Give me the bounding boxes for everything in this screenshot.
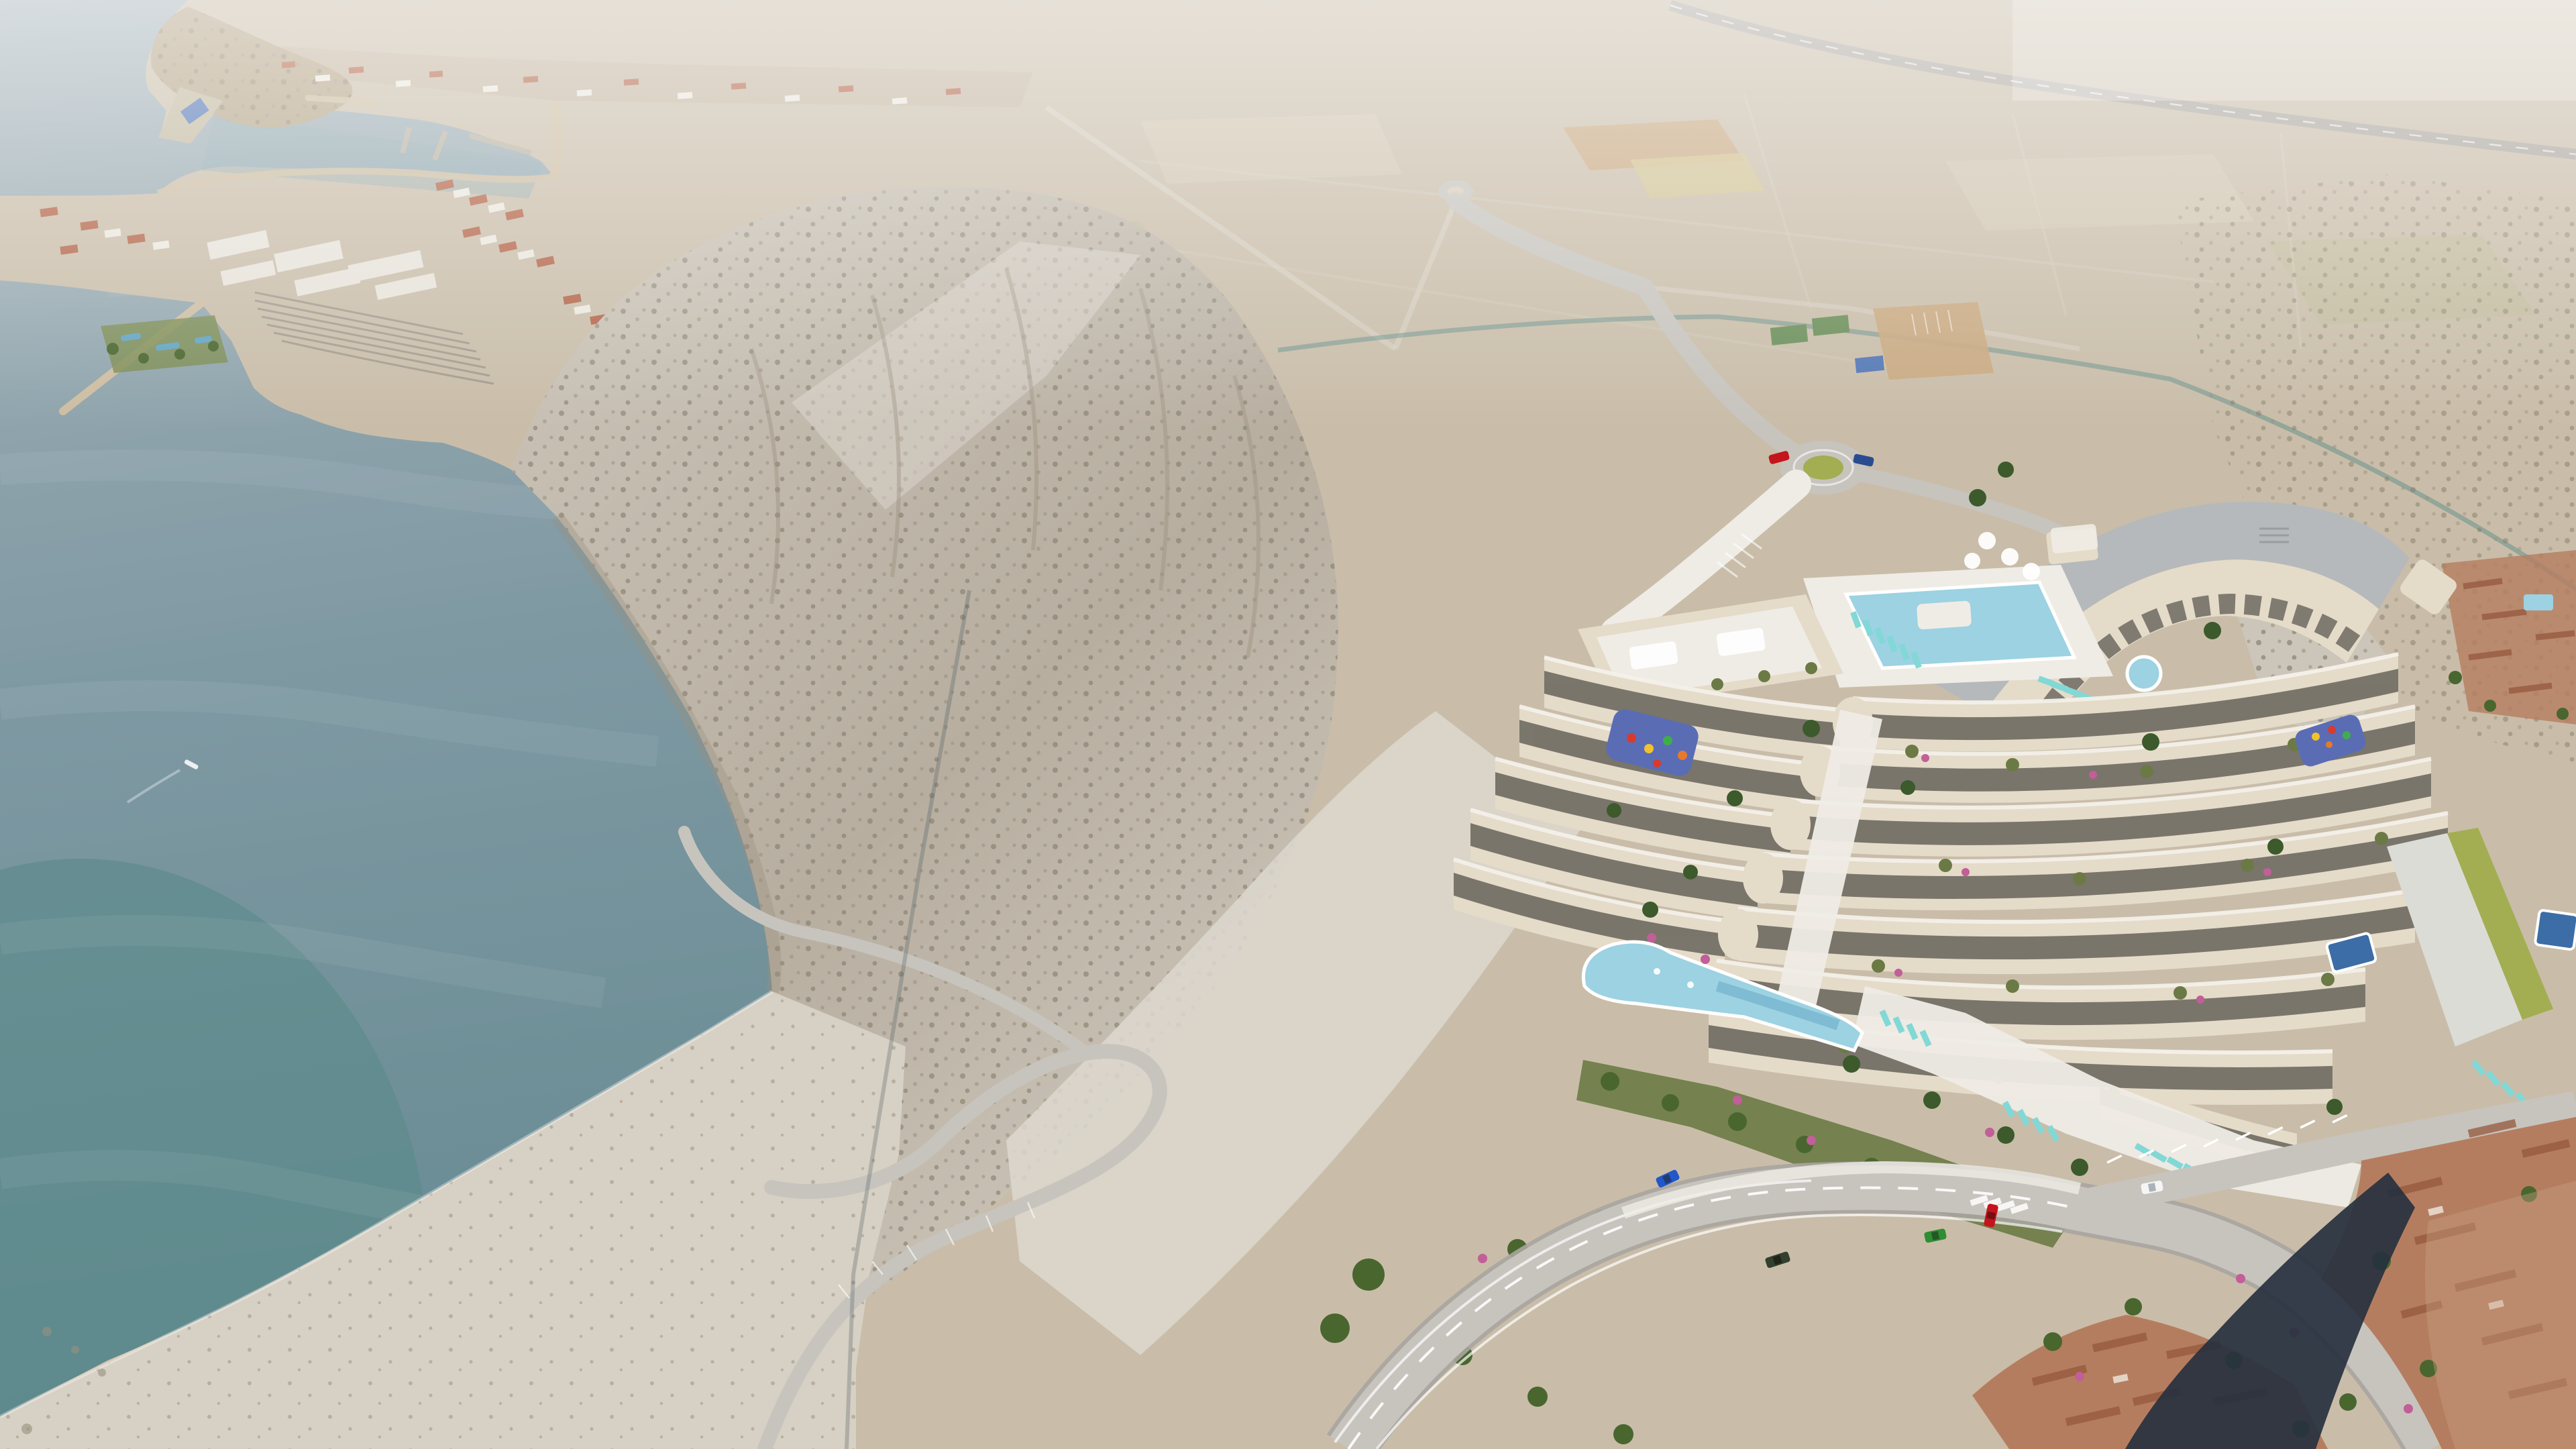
ne-town-pool <box>2524 594 2553 610</box>
jacuzzi <box>2127 657 2161 690</box>
blur-patch <box>2425 1181 2576 1449</box>
roundabout-lawn <box>1803 455 1843 480</box>
plunge-pool-east <box>2535 910 2576 950</box>
horizon-haze <box>2012 0 2576 101</box>
pool-bar <box>2046 524 2099 565</box>
aerial-render <box>0 0 2576 1449</box>
pool-island <box>1917 600 1972 629</box>
